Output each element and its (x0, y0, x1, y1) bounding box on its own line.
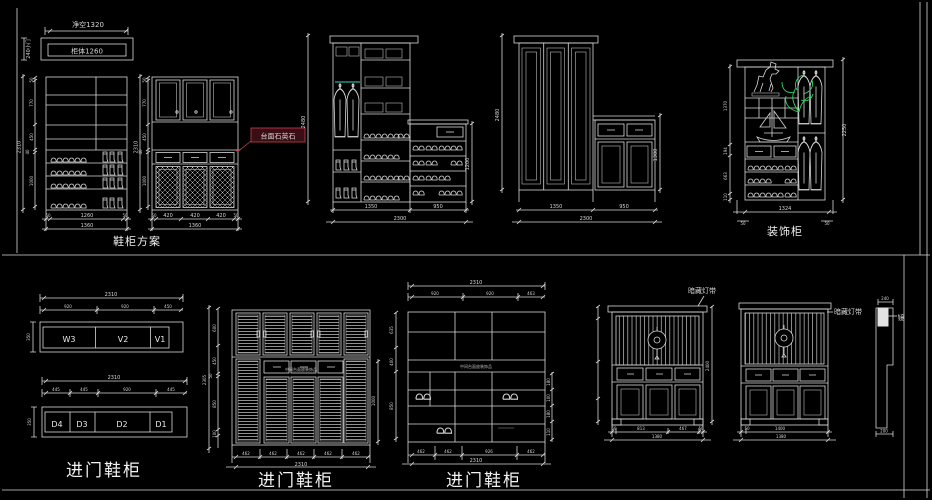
door-knocker-medallion (648, 331, 666, 349)
dim-deco-edge: 50 (824, 221, 830, 226)
dim-b-seg: 40 (138, 149, 143, 155)
dim-cab1-height: 2400 (705, 360, 710, 371)
dim-a-seg: 770 (29, 99, 34, 107)
cad-drawing: 净空1320 柜体1260 240小门 2310 50 770 450 40 1… (0, 0, 932, 500)
door-knocker-medallion (775, 329, 793, 347)
dim-a-bottom: 1260 (81, 213, 94, 219)
cell-v2: V2 (118, 335, 129, 344)
annotation-mirror: 镜 (898, 313, 905, 322)
dim-a-seg: 40 (25, 149, 30, 155)
dim-louver-seg: 50 (208, 373, 213, 379)
dim-a-bottom: 50 (122, 213, 128, 218)
mirror-panel (878, 308, 888, 326)
dim-s1-seg: 450 (164, 304, 172, 309)
cell-w3: W3 (63, 335, 76, 344)
dim-frame-bottom: 926 (485, 449, 493, 454)
dim-frame-top-seg: 920 (431, 291, 439, 296)
chinese-cabinet-2-elevation: 暗藏灯带 50 1400 1380 (733, 303, 862, 442)
dim-frame-bottom: 462 (444, 449, 452, 454)
dim-frame-left: 400 (389, 358, 394, 366)
dim-deco-edge: 50 (740, 221, 746, 226)
side-section-profile: 镜 240 200 (876, 296, 905, 437)
dim-s1-depth: 350 (26, 333, 31, 341)
dim-b-bottom-total: 1360 (189, 223, 202, 229)
dim-s2-depth: 350 (27, 418, 32, 426)
cell-v1: V1 (155, 335, 166, 344)
dim-b-bottom: 50 (233, 213, 239, 218)
wardrobe-closed-elevation: 2480 1300 1350 950 2300 (495, 33, 662, 224)
dim-frame-top-total: 2310 (470, 280, 483, 286)
dim-carcass: 柜体1260 (71, 47, 103, 56)
cell-d4: D4 (51, 420, 62, 429)
dim-louver-total-h: 2305 (202, 374, 207, 385)
dim-frame-right: 110 (546, 428, 551, 436)
dim-louver-right: 1000 (371, 395, 376, 406)
cabinet-b-elevation (152, 77, 238, 210)
dim-d-bench: 1300 (653, 149, 659, 162)
dim-d-w1: 1350 (550, 204, 563, 210)
countertop-annotation: 台面石英石 (236, 128, 305, 152)
dim-a-seg: 50 (29, 77, 34, 83)
dim-deco-seg: 194 (723, 147, 728, 155)
dim-s2-seg: 920 (123, 387, 131, 392)
cell-d1: D1 (155, 420, 166, 429)
dim-c-total: 2300 (394, 216, 407, 222)
cell-d2: D2 (116, 420, 127, 429)
dim-c-bench: 1200 (465, 158, 471, 171)
dim-frame-bottom: 462 (417, 449, 425, 454)
dim-s1-total: 2310 (105, 292, 118, 298)
note-middle-shelf: 中间台面放装饰品 (460, 363, 492, 369)
dim-b-seg: 50 (142, 77, 147, 83)
dim-b-bottom: 420 (216, 213, 226, 219)
dim-c-w2: 950 (433, 204, 443, 210)
cell-d3: D3 (76, 420, 87, 429)
dim-s1-seg: 920 (121, 304, 129, 309)
decorative-cabinet-elevation: 1370 194 663 110 2250 1324 50 50 装饰柜 (723, 57, 848, 238)
dim-s2-seg: 445 (167, 387, 175, 392)
dim-cab1-bottom: 50 (698, 426, 704, 431)
dim-louver-bottom: 462 (352, 451, 360, 456)
dim-cab2-bottom-total: 1380 (776, 434, 787, 439)
frame-cabinet-elevation: 2310 920 920 463 中间台面放装饰品 635 400 850 18… (389, 280, 554, 491)
dim-clear-span: 净空1320 (72, 20, 104, 29)
dim-frame-right: 180 (546, 378, 551, 386)
shoe-plan-group: 净空1320 柜体1260 240小门 2310 50 770 450 40 1… (17, 20, 306, 248)
label-entry-shoe-cabinet-2: 进门鞋柜 (258, 471, 334, 491)
dim-b-seg: 770 (142, 99, 147, 107)
dim-frame-top-seg: 463 (527, 291, 535, 296)
dim-c-w1: 1350 (365, 204, 378, 210)
dim-deco-seg: 110 (723, 193, 728, 201)
group-label-shoe-plan: 鞋柜方案 (113, 234, 161, 248)
annotation-hidden-light-2: 暗藏灯带 (834, 307, 862, 316)
label-entry-shoe-cabinet-3: 进门鞋柜 (446, 471, 522, 491)
dim-louver-bottom: 462 (242, 451, 250, 456)
dim-louver-seg: 100 (212, 430, 217, 438)
dim-b-bottom: 50 (151, 213, 157, 218)
annotation-hidden-light-1: 暗藏灯带 (688, 286, 716, 295)
dim-d-total: 2300 (580, 216, 593, 222)
plan-strips-group: W3 V2 V1 2310 920 920 450 350 D4 D3 D2 D… (26, 292, 187, 481)
dim-cab1-bottom-total: 1380 (652, 434, 663, 439)
louvered-cabinet-elevation: 2305 600 450 50 850 100 中间台面放装饰品 1000 46… (202, 305, 380, 491)
chinese-cabinet-1-elevation: 暗藏灯带 2400 50 813 467 50 1380 (596, 286, 716, 442)
dim-s2-seg: 445 (80, 387, 88, 392)
horse-figurine (754, 62, 779, 92)
annotation-quartz: 台面石英石 (261, 132, 296, 141)
dim-frame-right: 100 (546, 394, 551, 402)
dim-frame-bottom-total: 2310 (470, 458, 483, 464)
cabinet-a-elevation (46, 77, 127, 210)
dim-section-bottom: 200 (880, 429, 888, 434)
dim-frame-left: 850 (389, 402, 394, 410)
dim-cab1-bottom: 813 (637, 426, 645, 431)
dim-deco-seg: 1370 (723, 100, 728, 111)
dim-a-bottom-total: 1360 (81, 223, 94, 229)
dim-a-seg: 450 (29, 133, 34, 141)
group-label-deco: 装饰柜 (767, 224, 803, 238)
cad-drawing-canvas: 净空1320 柜体1260 240小门 2310 50 770 450 40 1… (0, 0, 932, 500)
dim-b-seg: 1000 (142, 175, 147, 186)
dim-louver-seg: 600 (212, 324, 217, 332)
dim-louver-bottom: 462 (297, 451, 305, 456)
dim-louver-seg: 850 (212, 400, 217, 408)
dim-frame-left: 635 (389, 326, 394, 334)
dim-b-bottom: 420 (190, 213, 200, 219)
dim-s1-seg: 920 (64, 304, 72, 309)
dim-louver-bottom-total: 2310 (295, 462, 308, 468)
dim-section-top: 240 (881, 296, 889, 301)
dim-s2-total: 2310 (108, 375, 121, 381)
dim-louver-seg: 450 (212, 357, 217, 365)
dim-cab1-bottom: 50 (611, 426, 617, 431)
dim-a-bottom: 50 (45, 213, 51, 218)
dim-frame-top-seg: 920 (486, 291, 494, 296)
dim-a-total-h: 2310 (17, 141, 23, 154)
wardrobe-open-elevation: 2480 1200 1350 950 2300 (301, 33, 474, 224)
dim-louver-bottom: 462 (324, 451, 332, 456)
dim-cab2-bottom: 50 (744, 426, 750, 431)
dim-side-note: 240小门 (25, 39, 32, 59)
dim-deco-width: 1324 (779, 206, 792, 212)
dim-deco-seg: 663 (723, 172, 728, 180)
dim-b-bottom: 420 (163, 213, 173, 219)
dim-louver-bottom: 462 (269, 451, 277, 456)
dim-frame-right: 180 (546, 410, 551, 418)
dim-cab2-bottom: 1400 (775, 426, 786, 431)
dim-cab1-bottom: 467 (679, 426, 687, 431)
dim-b-seg: 450 (142, 133, 147, 141)
dim-d-w2: 950 (619, 204, 629, 210)
dim-deco-height: 2250 (842, 124, 848, 137)
label-entry-shoe-cabinet-1: 进门鞋柜 (66, 461, 142, 481)
dim-s2-seg: 445 (52, 387, 60, 392)
dim-c-height: 2480 (301, 116, 307, 129)
dim-d-height: 2480 (495, 109, 501, 122)
dim-a-seg: 1000 (29, 175, 34, 186)
dim-frame-bottom: 462 (527, 449, 535, 454)
